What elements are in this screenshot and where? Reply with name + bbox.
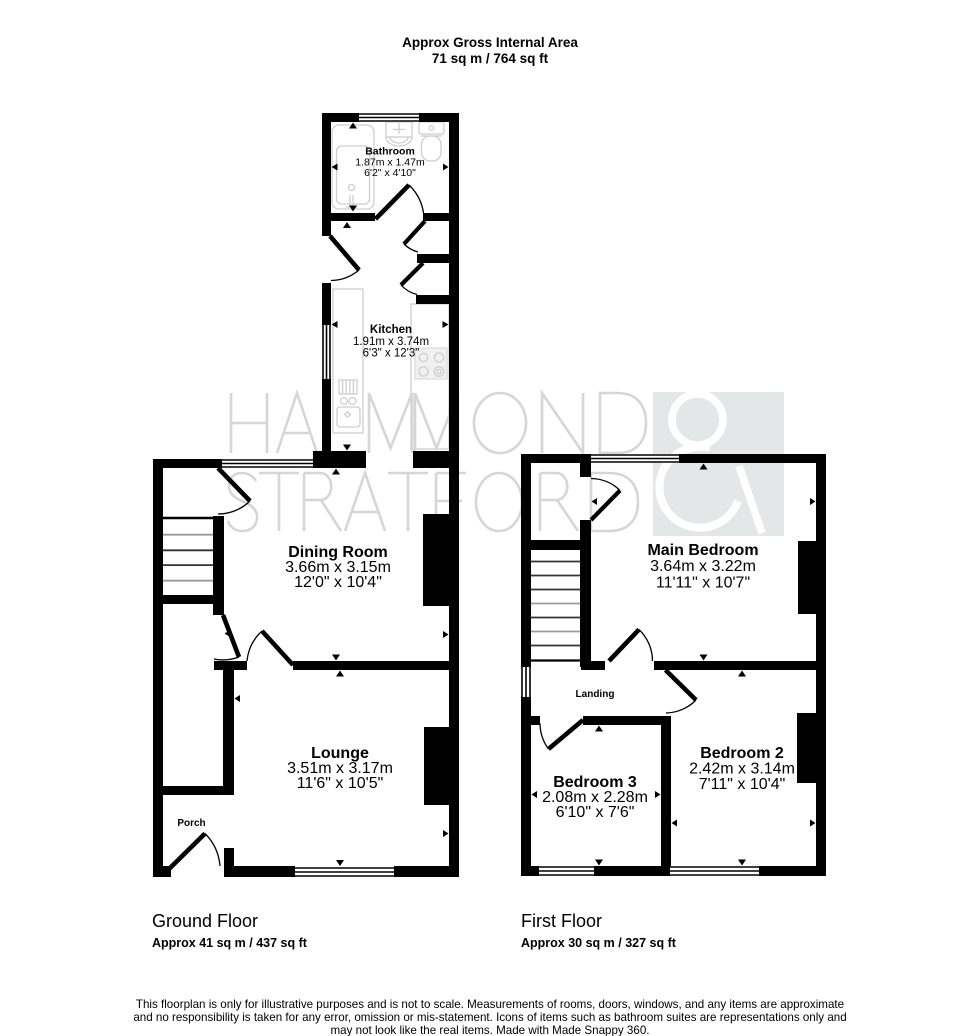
svg-text:6'3" x 12'3": 6'3" x 12'3": [363, 348, 420, 360]
svg-text:11'6" x 10'5": 11'6" x 10'5": [297, 775, 384, 792]
svg-text:and no responsibility is taken: and no responsibility is taken for any e…: [133, 1011, 846, 1024]
svg-text:may not look like the real ite: may not look like the real items. Made w…: [331, 1024, 650, 1036]
svg-text:Kitchen: Kitchen: [370, 324, 412, 336]
svg-text:Landing: Landing: [576, 689, 615, 700]
svg-text:Main Bedroom: Main Bedroom: [647, 542, 758, 559]
svg-text:Ground Floor: Ground Floor: [152, 911, 258, 931]
svg-text:Porch: Porch: [177, 818, 205, 829]
svg-text:12'0" x 10'4": 12'0" x 10'4": [294, 574, 382, 591]
svg-text:Bedroom 2: Bedroom 2: [700, 745, 784, 762]
svg-text:Approx 30 sq m / 327 sq ft: Approx 30 sq m / 327 sq ft: [521, 936, 677, 950]
svg-text:6'2" x 4'10": 6'2" x 4'10": [364, 167, 416, 179]
svg-text:1.91m x 3.74m: 1.91m x 3.74m: [353, 336, 429, 348]
svg-text:71 sq m / 764 sq ft: 71 sq m / 764 sq ft: [432, 51, 549, 66]
svg-text:First Floor: First Floor: [521, 911, 602, 931]
svg-text:3.64m x 3.22m: 3.64m x 3.22m: [650, 558, 756, 575]
svg-text:6'10" x 7'6": 6'10" x 7'6": [556, 804, 635, 821]
svg-text:11'11" x 10'7": 11'11" x 10'7": [656, 575, 750, 592]
svg-text:Approx 41 sq m / 437 sq ft: Approx 41 sq m / 437 sq ft: [152, 936, 308, 950]
svg-text:7'11" x 10'4": 7'11" x 10'4": [699, 776, 786, 793]
svg-text:2.42m x 3.14m: 2.42m x 3.14m: [689, 761, 795, 778]
svg-text:Approx Gross Internal Area: Approx Gross Internal Area: [402, 35, 578, 50]
svg-text:This floorplan is only for ill: This floorplan is only for illustrative …: [136, 998, 844, 1011]
